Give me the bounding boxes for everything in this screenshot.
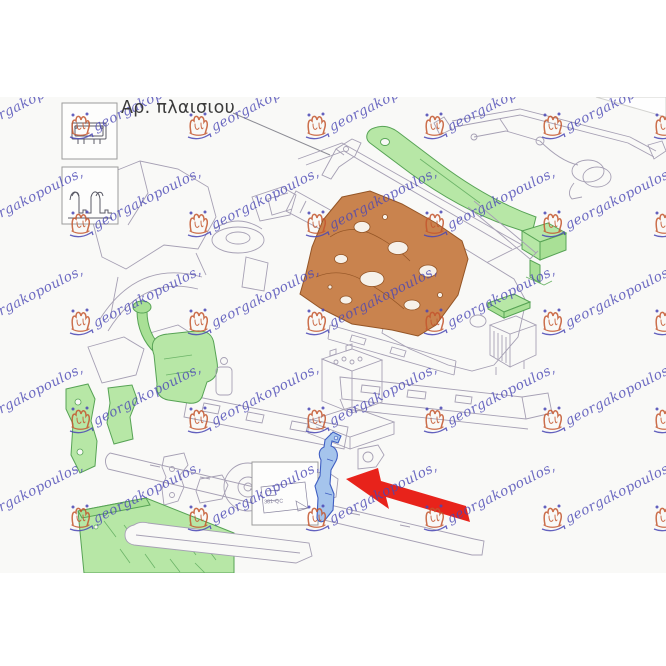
adjacent-image-corner — [596, 97, 666, 117]
exploded-parts-drawing — [0, 97, 666, 573]
sticker-inset-box — [252, 462, 318, 525]
indicator-arrow — [346, 468, 470, 522]
chassis-number-leader-line — [233, 113, 330, 155]
sticker-code-text: 381-QC — [264, 498, 284, 505]
fender-bracket-lineart — [322, 139, 361, 179]
profile-section-inset-box — [62, 167, 118, 224]
firewall-panel-orange-highlight — [300, 191, 468, 336]
washer-reservoir-green-highlight — [133, 301, 217, 403]
fender-stay-brackets-green-highlight — [66, 384, 137, 473]
washer-pump-lineart — [216, 358, 232, 396]
side-bracket-blue-highlight — [315, 432, 341, 522]
control-unit-box-green-highlight — [522, 223, 566, 285]
parts-diagram-image[interactable]: georgakopoulos,georgakopoulos,georgakopo… — [0, 97, 666, 573]
battery-lineart — [308, 344, 394, 449]
vin-plate-inset-box — [62, 103, 117, 159]
chassis-number-label: Αρ. πλαισιου — [121, 98, 235, 118]
